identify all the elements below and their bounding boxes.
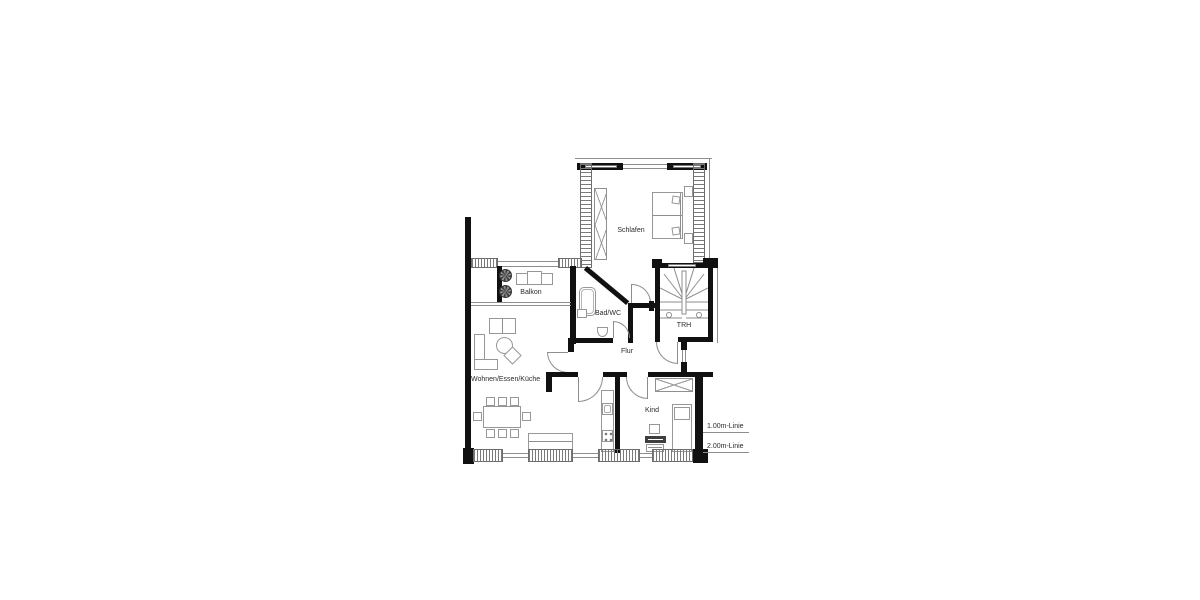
dining-chair <box>510 429 519 438</box>
wall-below-trh-top <box>681 342 687 350</box>
parapet-hatch <box>652 449 693 462</box>
balcony-railing-mid-a <box>498 261 560 262</box>
wall-flur-bottom-west <box>546 372 578 377</box>
window-bottom-a1 <box>503 453 528 454</box>
wardrobe-schlafen <box>594 188 607 260</box>
desk-chair <box>649 424 660 434</box>
pillow <box>671 195 680 204</box>
door-leaf-wohnen <box>547 352 568 353</box>
annotation-2m-underline <box>703 452 749 453</box>
door-leaf-bad <box>613 321 614 338</box>
plant <box>499 269 512 282</box>
room-label-schlafen: Schlafen <box>617 227 644 235</box>
balcony-table <box>527 271 542 285</box>
plant <box>499 285 512 298</box>
window-bottom-c1 <box>640 453 652 454</box>
annotation-1m-underline <box>703 432 749 433</box>
sideboard-line <box>529 441 572 442</box>
wardrobe-kind <box>655 378 693 392</box>
dining-chair <box>522 412 531 421</box>
parapet-hatch <box>598 449 640 462</box>
kitchen-sink-basin <box>604 405 611 413</box>
room-label-flur: Flur <box>621 348 633 356</box>
door-arc-kueche <box>578 377 603 402</box>
parapet-hatch <box>473 449 503 462</box>
door-leaf-kind <box>647 377 648 399</box>
dining-chair <box>486 397 495 406</box>
room-label-wohnen: Wohnen/Essen/Küche <box>471 376 540 384</box>
room-label-bad-wc: Bad/WC <box>581 310 621 318</box>
window-bottom-b1 <box>573 453 598 454</box>
roof-edge-line-right-trh <box>717 263 718 343</box>
roof-edge-line-right-upper <box>709 158 710 264</box>
door-arc-wohnen <box>547 352 568 373</box>
window-schlafen-center-a <box>623 164 667 165</box>
desk-line <box>648 439 663 440</box>
room-label-trh: TRH <box>677 322 691 330</box>
door-arc-kind <box>626 377 648 399</box>
wall-trh-right <box>708 263 713 342</box>
dining-chair <box>510 397 519 406</box>
wall-left-outer <box>465 217 471 463</box>
door-leaf-entry <box>677 342 678 364</box>
wall-schlafen-left-hatched <box>580 163 592 268</box>
wall-flur-bottom-east <box>648 372 713 377</box>
window-bottom-b2 <box>573 457 598 458</box>
window-trh-top <box>668 264 696 267</box>
dining-chair <box>486 429 495 438</box>
desk-drawer-line <box>648 447 662 448</box>
pillow <box>671 226 680 235</box>
nightstand <box>684 186 693 197</box>
stove <box>602 430 613 442</box>
window-balcony-b <box>471 305 571 306</box>
wall-kueche-kind <box>615 373 620 453</box>
nightstand <box>684 233 693 244</box>
room-label-balkon: Balkon <box>520 289 541 297</box>
kitchen-counter <box>601 390 614 452</box>
door-leaf-schlafen <box>631 284 632 303</box>
annotation-1m-line: 1.00m-Linie <box>707 423 744 431</box>
annotation-2m-line: 2.00m-Linie <box>707 443 744 451</box>
bed-schlafen-divider <box>653 215 682 216</box>
dining-chair <box>473 412 482 421</box>
dining-chair <box>498 429 507 438</box>
toilet <box>597 327 608 337</box>
floorplan-canvas: Schlafen Balkon Bad/WC <box>0 0 1200 600</box>
window-balcony-a <box>471 302 571 303</box>
pillow-kind <box>674 407 690 420</box>
sofa-l-horizontal <box>474 359 498 370</box>
wall-bad-north-east <box>628 303 655 308</box>
wall-schlafen-right-hatched <box>693 163 705 263</box>
window-bottom-a2 <box>503 457 528 458</box>
window-bottom-c2 <box>640 457 652 458</box>
balcony-chair <box>541 273 553 285</box>
room-label-kind: Kind <box>645 407 659 415</box>
door-arc-entry <box>656 342 678 364</box>
sofa-cushion-divider <box>502 319 503 333</box>
window-schlafen-center-b <box>623 168 667 169</box>
wall-bad-bottom <box>568 338 613 343</box>
dining-table <box>483 406 521 428</box>
wall-flur-west-stub <box>568 343 574 352</box>
balcony-railing-mid-b <box>498 266 560 267</box>
roof-edge-line-top <box>575 158 712 159</box>
balcony-railing-left <box>471 258 498 268</box>
dining-chair <box>498 397 507 406</box>
parapet-hatch <box>528 449 573 462</box>
door-leaf-kueche <box>578 377 579 402</box>
